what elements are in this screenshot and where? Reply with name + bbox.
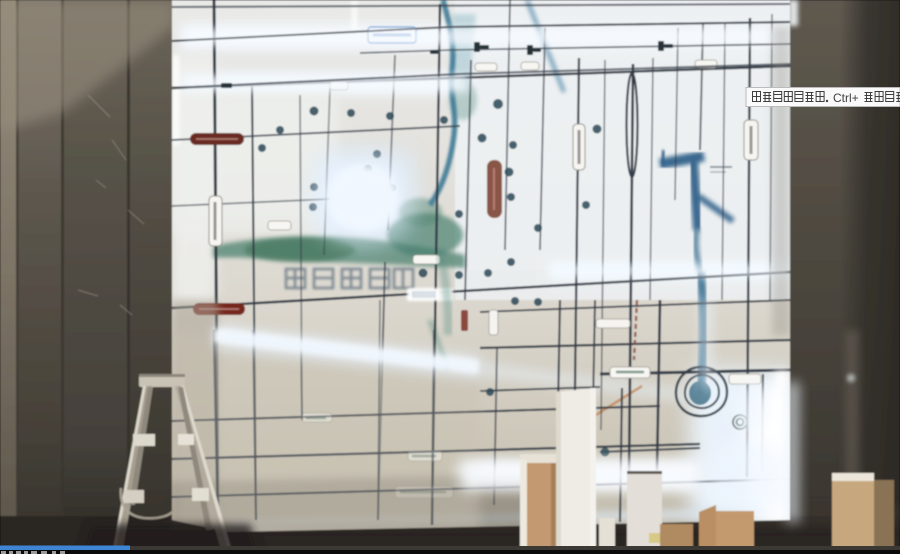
svg-text:Ctrl+: Ctrl+ [833, 91, 859, 105]
